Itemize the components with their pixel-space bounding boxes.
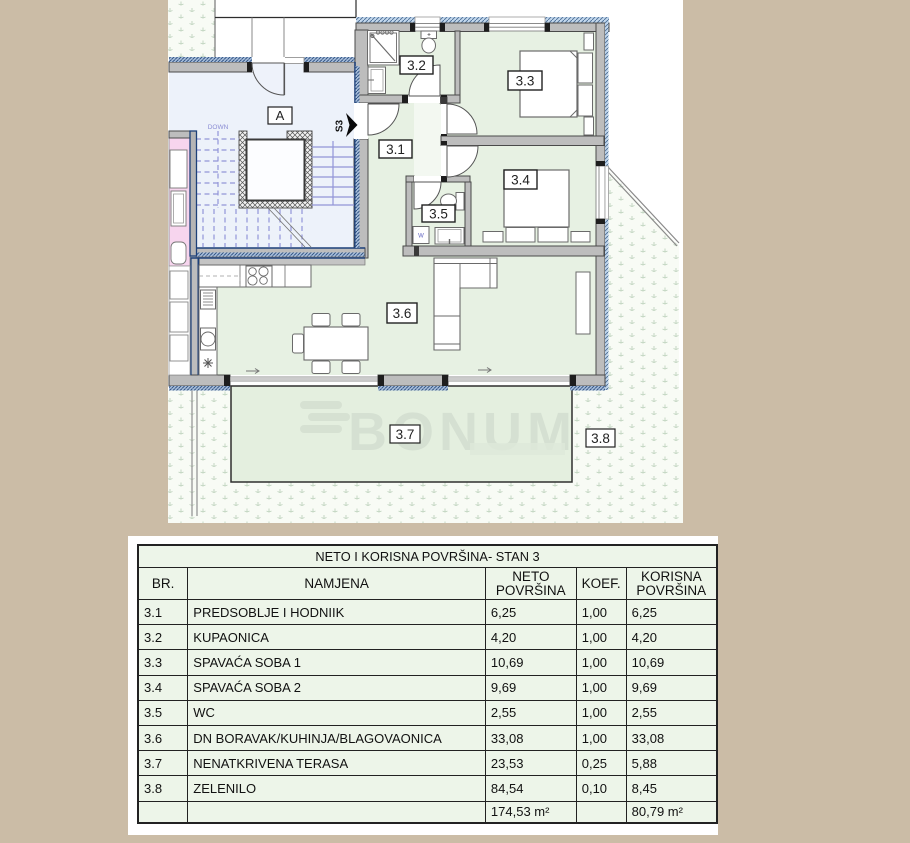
svg-text:3.3: 3.3 xyxy=(516,74,535,89)
svg-text:DOWN: DOWN xyxy=(208,124,229,131)
svg-text:3.5: 3.5 xyxy=(429,207,448,222)
svg-text:3.8: 3.8 xyxy=(591,431,610,446)
svg-text:A: A xyxy=(276,108,285,123)
svg-text:3.7: 3.7 xyxy=(396,427,415,442)
svg-text:W: W xyxy=(418,234,424,240)
svg-text:3.6: 3.6 xyxy=(393,306,412,321)
svg-text:S3: S3 xyxy=(335,119,346,132)
svg-text:3.4: 3.4 xyxy=(511,173,530,188)
svg-text:3.2: 3.2 xyxy=(407,58,426,73)
svg-text:3.1: 3.1 xyxy=(386,142,405,157)
